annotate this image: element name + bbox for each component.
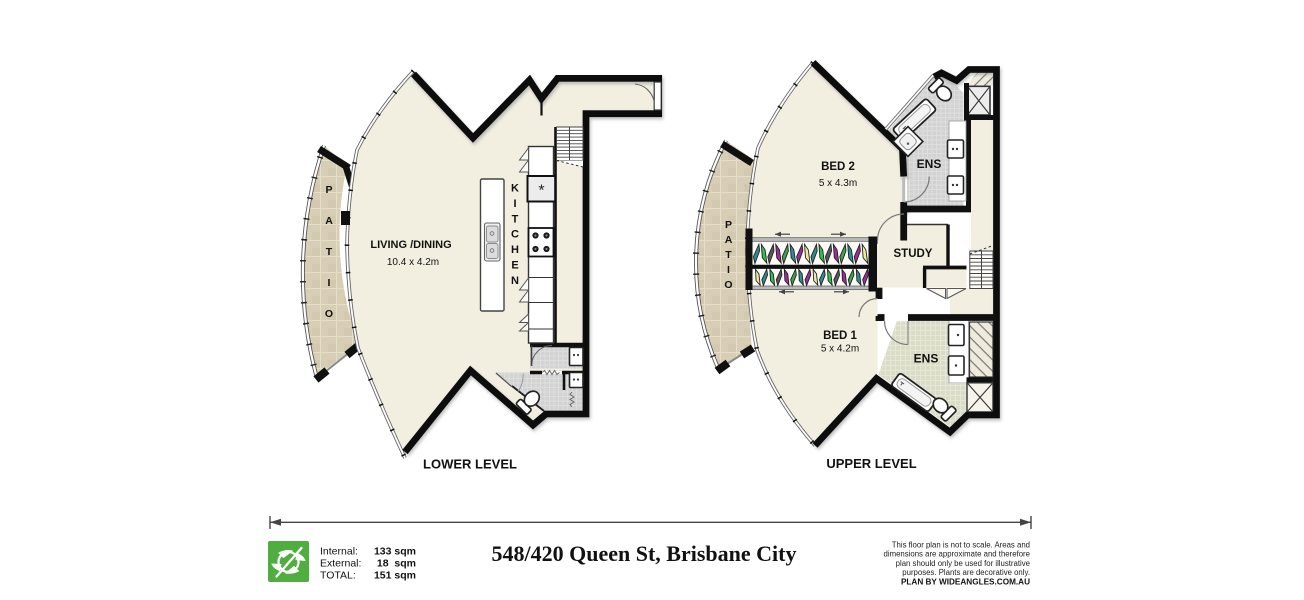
svg-text:151 sqm: 151 sqm bbox=[374, 570, 416, 582]
svg-text:18 sqm: 18 sqm bbox=[377, 558, 416, 570]
svg-text:External:: External: bbox=[320, 558, 361, 570]
svg-text:TOTAL:: TOTAL: bbox=[320, 570, 356, 582]
svg-text:*: * bbox=[538, 183, 544, 200]
svg-text:ENS: ENS bbox=[914, 352, 939, 366]
svg-text:548/420 Queen St, Brisbane Cit: 548/420 Queen St, Brisbane City bbox=[492, 541, 797, 566]
svg-text:A: A bbox=[725, 234, 733, 246]
svg-text:5 x 4.3m: 5 x 4.3m bbox=[819, 178, 857, 189]
svg-text:ENS: ENS bbox=[917, 157, 942, 171]
svg-text:dimensions are approximate and: dimensions are approximate and therefore bbox=[884, 550, 1031, 559]
svg-text:T: T bbox=[725, 249, 732, 261]
svg-text:O: O bbox=[325, 308, 333, 320]
svg-text:LIVING /DINING: LIVING /DINING bbox=[370, 239, 451, 251]
svg-text:PLAN BY WIDEANGLES.COM.AU: PLAN BY WIDEANGLES.COM.AU bbox=[901, 578, 1030, 587]
svg-text:purposes. Plants are decorativ: purposes. Plants are decorative only. bbox=[902, 568, 1030, 577]
svg-text:H: H bbox=[511, 244, 519, 256]
svg-text:P: P bbox=[325, 184, 332, 196]
svg-text:K: K bbox=[511, 183, 519, 195]
svg-text:133 sqm: 133 sqm bbox=[374, 546, 416, 558]
svg-text:STUDY: STUDY bbox=[894, 248, 933, 260]
svg-text:I: I bbox=[727, 264, 730, 276]
svg-text:P: P bbox=[725, 219, 732, 231]
svg-text:T: T bbox=[512, 213, 519, 225]
svg-text:This floor plan is not to scal: This floor plan is not to scale. Areas a… bbox=[892, 541, 1030, 550]
svg-text:O: O bbox=[724, 279, 732, 291]
svg-text:LOWER LEVEL: LOWER LEVEL bbox=[423, 457, 517, 472]
svg-text:10.4 x 4.2m: 10.4 x 4.2m bbox=[387, 257, 439, 268]
svg-text:UPPER LEVEL: UPPER LEVEL bbox=[826, 456, 916, 471]
svg-text:I: I bbox=[513, 198, 516, 210]
svg-text:E: E bbox=[511, 260, 518, 272]
svg-text:I: I bbox=[328, 277, 331, 289]
svg-text:A: A bbox=[325, 215, 333, 227]
svg-text:BED 1: BED 1 bbox=[823, 330, 857, 342]
svg-text:N: N bbox=[511, 275, 519, 287]
svg-text:5 x 4.2m: 5 x 4.2m bbox=[821, 344, 859, 355]
svg-text:Internal:: Internal: bbox=[320, 546, 358, 558]
svg-text:T: T bbox=[326, 246, 333, 258]
svg-text:plan should only be used for i: plan should only be used for illustrativ… bbox=[896, 559, 1030, 568]
svg-text:BED 2: BED 2 bbox=[821, 161, 855, 173]
svg-text:C: C bbox=[511, 229, 519, 241]
